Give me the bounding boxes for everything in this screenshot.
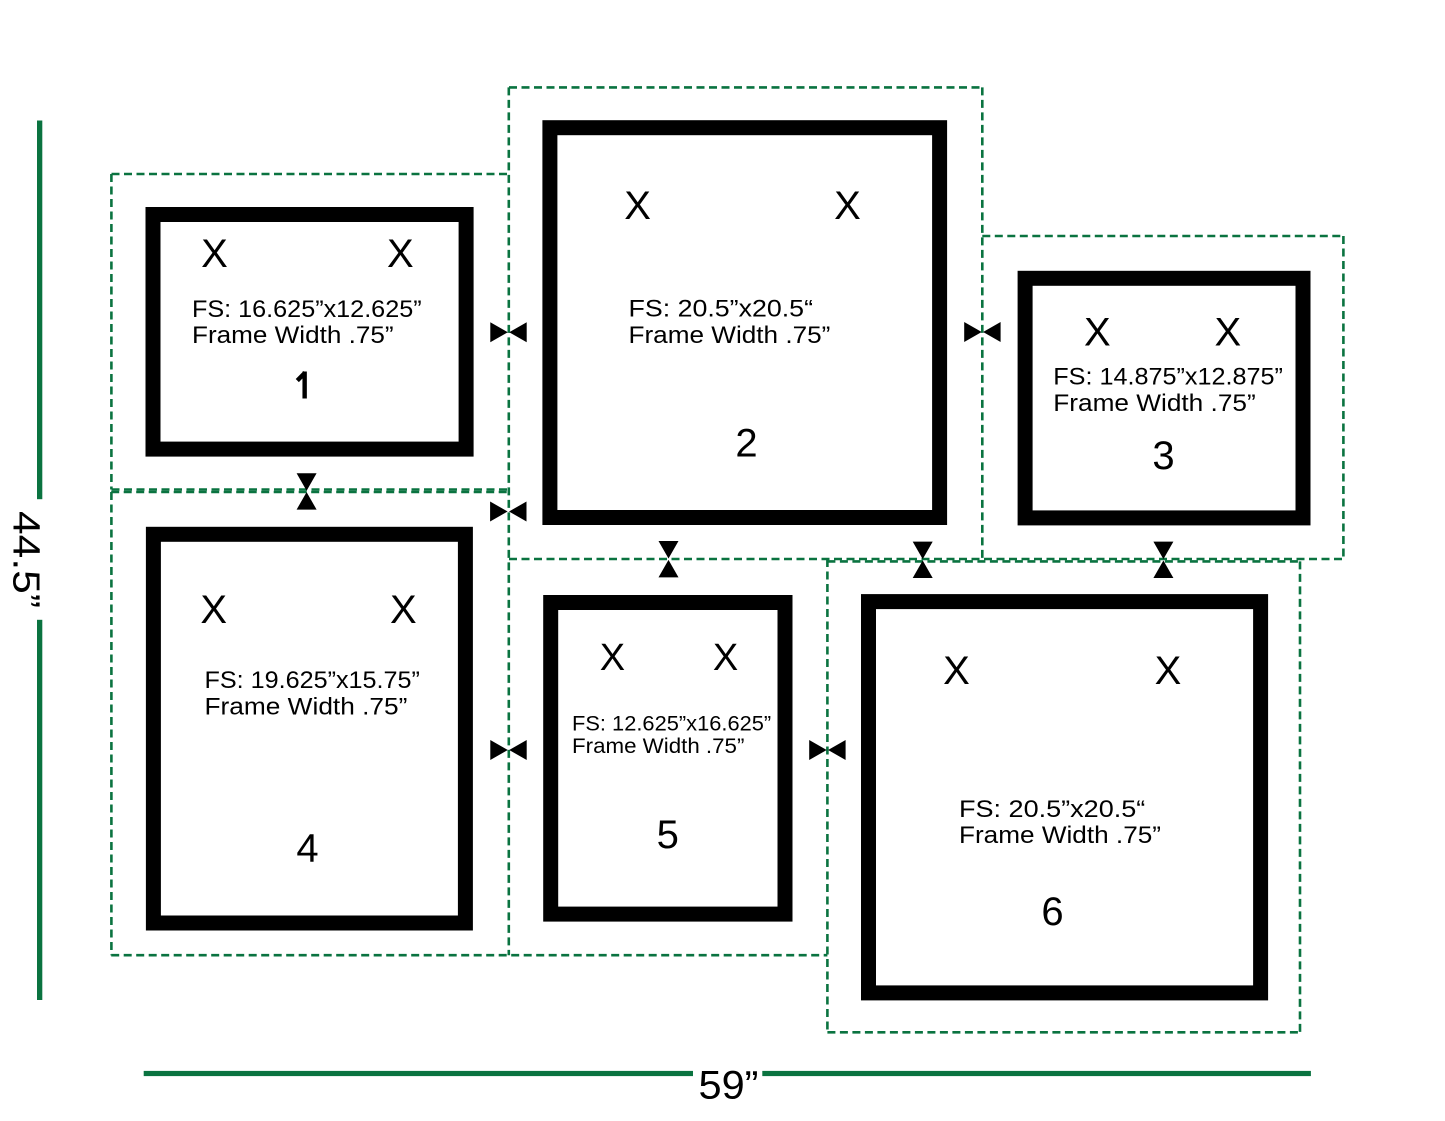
svg-text:44.5”: 44.5” [5, 511, 47, 608]
svg-text:X: X [943, 649, 970, 693]
svg-text:59”: 59” [699, 1064, 759, 1108]
svg-text:X: X [834, 184, 861, 228]
svg-text:X: X [201, 232, 228, 276]
svg-text:2: 2 [735, 422, 757, 466]
svg-text:X: X [390, 588, 417, 632]
svg-text:FS: 12.625”x16.625”: FS: 12.625”x16.625” [572, 711, 771, 735]
svg-text:Frame Width .75”: Frame Width .75” [572, 734, 744, 758]
svg-text:Frame Width .75”: Frame Width .75” [959, 822, 1161, 849]
svg-text:FS: 19.625”x15.75”: FS: 19.625”x15.75” [205, 667, 420, 694]
svg-text:FS: 14.875”x12.875”: FS: 14.875”x12.875” [1053, 364, 1283, 391]
svg-text:X: X [1214, 311, 1241, 355]
svg-text:FS: 16.625”x12.625”: FS: 16.625”x12.625” [192, 296, 422, 323]
svg-text:4: 4 [296, 826, 318, 870]
svg-text:3: 3 [1152, 434, 1174, 478]
svg-text:X: X [624, 184, 651, 228]
svg-text:Frame Width .75”: Frame Width .75” [1053, 390, 1255, 417]
svg-text:Frame Width .75”: Frame Width .75” [629, 322, 831, 349]
svg-text:FS: 20.5”x20.5“: FS: 20.5”x20.5“ [629, 295, 814, 322]
svg-text:5: 5 [657, 813, 679, 857]
svg-text:X: X [200, 588, 227, 632]
svg-text:FS: 20.5”x20.5“: FS: 20.5”x20.5“ [959, 796, 1145, 823]
svg-text:X: X [387, 232, 414, 276]
svg-text:6: 6 [1041, 890, 1063, 934]
svg-text:X: X [1084, 311, 1111, 355]
svg-text:X: X [1155, 649, 1182, 693]
svg-text:Frame Width .75”: Frame Width .75” [192, 322, 394, 349]
svg-text:X: X [600, 637, 625, 679]
svg-text:Frame Width .75”: Frame Width .75” [205, 693, 408, 720]
svg-text:X: X [713, 637, 738, 679]
